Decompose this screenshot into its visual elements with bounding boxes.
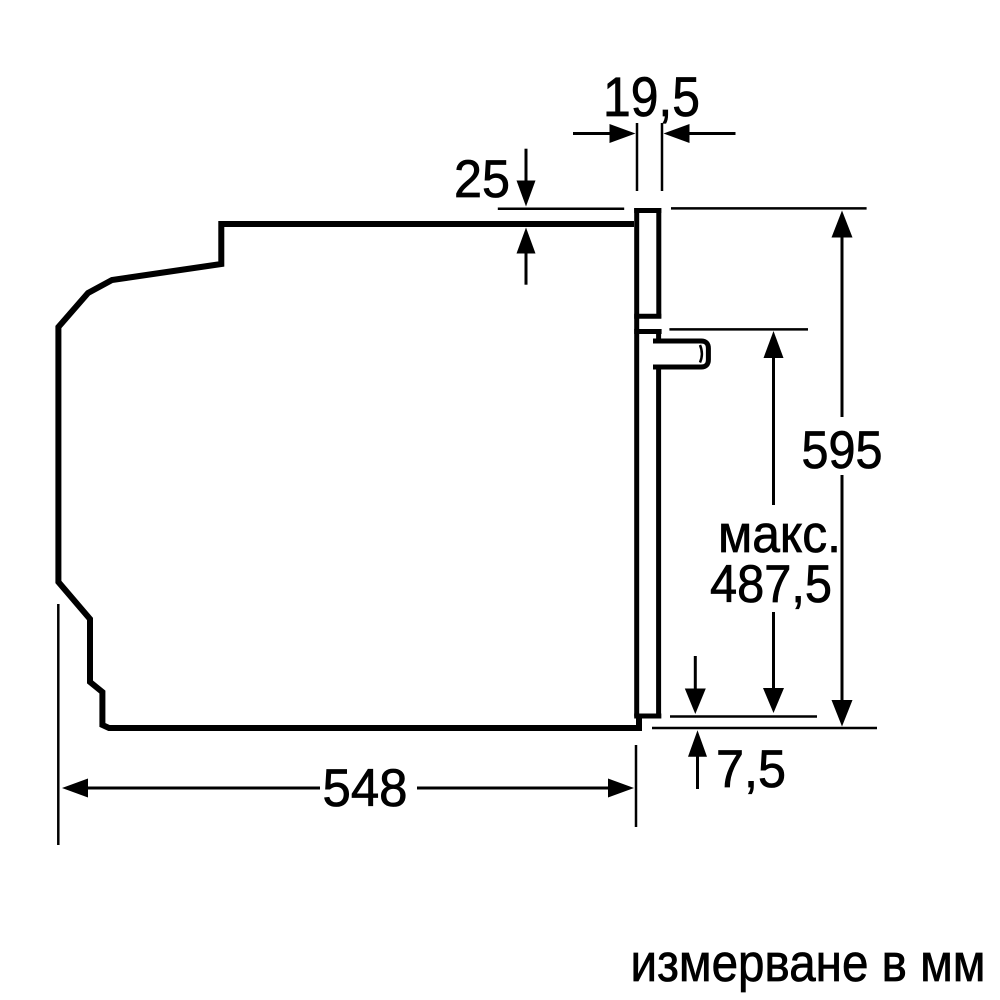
- svg-text:измерване в мм: измерване в мм: [631, 934, 986, 993]
- svg-text:487,5: 487,5: [710, 555, 832, 614]
- svg-text:25: 25: [454, 150, 510, 209]
- svg-text:7,5: 7,5: [716, 740, 786, 799]
- svg-text:548: 548: [323, 759, 408, 818]
- svg-text:19,5: 19,5: [603, 65, 700, 128]
- svg-text:595: 595: [802, 421, 883, 480]
